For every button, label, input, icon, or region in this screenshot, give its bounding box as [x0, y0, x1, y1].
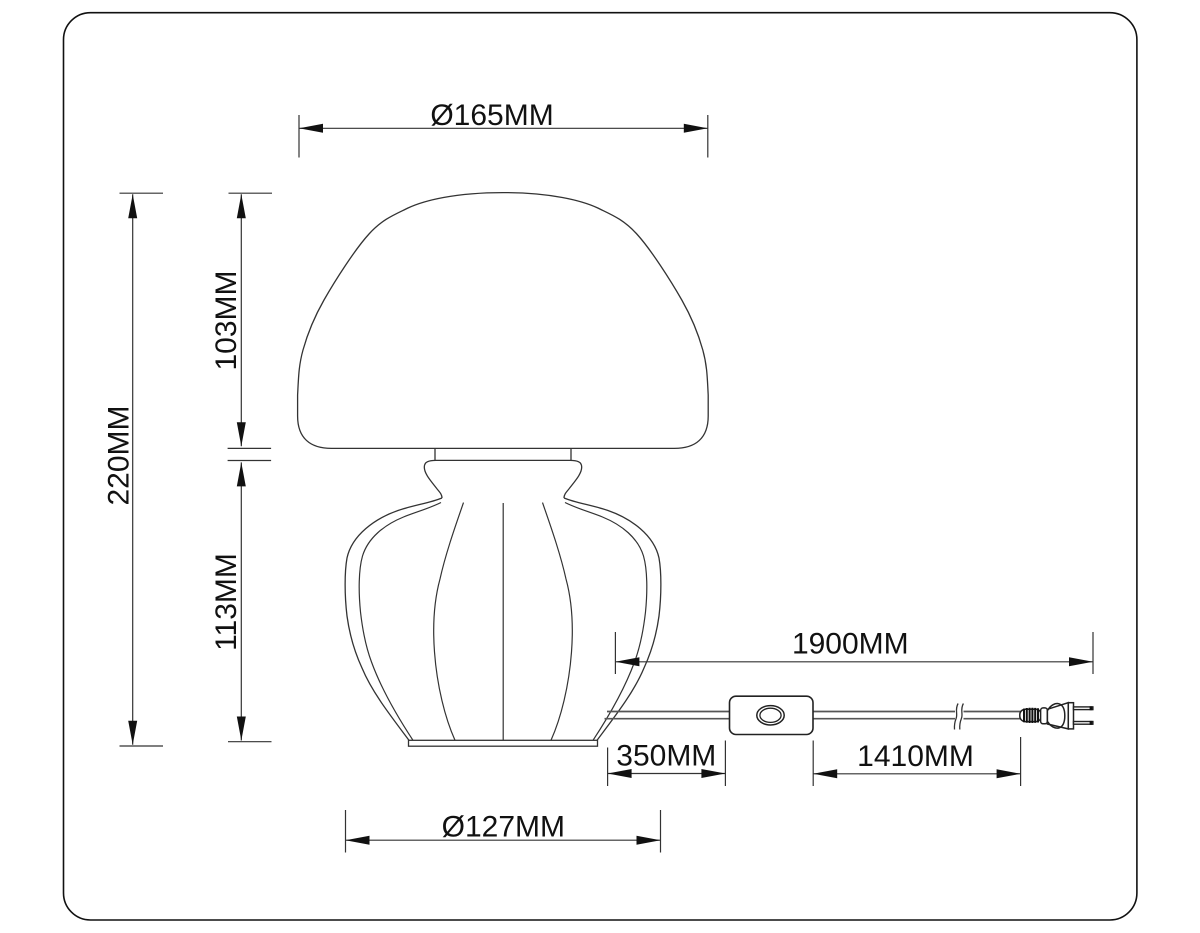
svg-text:220MM: 220MM [103, 405, 136, 505]
svg-text:113MM: 113MM [210, 553, 243, 651]
svg-text:1900MM: 1900MM [792, 628, 909, 661]
svg-text:1410MM: 1410MM [857, 740, 974, 773]
svg-text:Ø165MM: Ø165MM [430, 99, 553, 132]
svg-text:Ø127MM: Ø127MM [442, 811, 565, 844]
svg-text:103MM: 103MM [210, 270, 243, 370]
svg-text:350MM: 350MM [616, 740, 716, 773]
